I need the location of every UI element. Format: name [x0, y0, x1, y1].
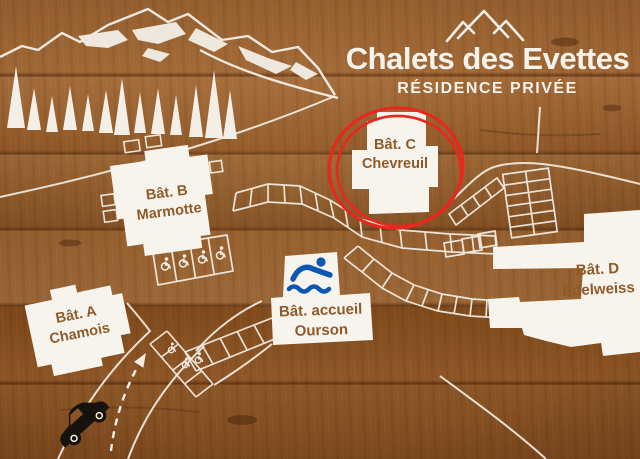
parking-diagonal-upper: [444, 178, 504, 257]
pine-trees-icon: [7, 66, 237, 139]
building-label-accueil: Bât. accueil Ourson: [268, 299, 373, 342]
wheelchair-icon: [217, 246, 226, 259]
sign-title: Chalets des Evettes: [336, 42, 639, 76]
building-name: Bât. C: [345, 136, 445, 155]
wheelchair-icon: [162, 257, 171, 270]
parking-entry-road: [150, 331, 213, 397]
building-name: Bât. accueil: [268, 299, 373, 322]
building-animal: Ourson: [269, 319, 374, 342]
parking-grid: [503, 168, 557, 238]
building-animal: Chevreuil: [345, 155, 445, 174]
mountain-peaks-icon: [447, 11, 523, 41]
mountain-range: [0, 9, 338, 98]
car-icon: [49, 390, 114, 453]
building-label-d: Bât. D Edelweiss: [546, 257, 640, 301]
building-label-c: Bât. C Chevreuil: [345, 136, 445, 174]
parking-diagonal-lower: [185, 318, 282, 371]
wheelchair-icon: [180, 254, 189, 267]
title-block: Chalets des Evettes RÉSIDENCE PRIVÉE: [336, 42, 639, 98]
wooden-map-sign: Chalets des Evettes RÉSIDENCE PRIVÉE Bât…: [0, 0, 640, 459]
wheelchair-icon: [199, 250, 208, 263]
sign-subtitle: RÉSIDENCE PRIVÉE: [336, 80, 639, 98]
